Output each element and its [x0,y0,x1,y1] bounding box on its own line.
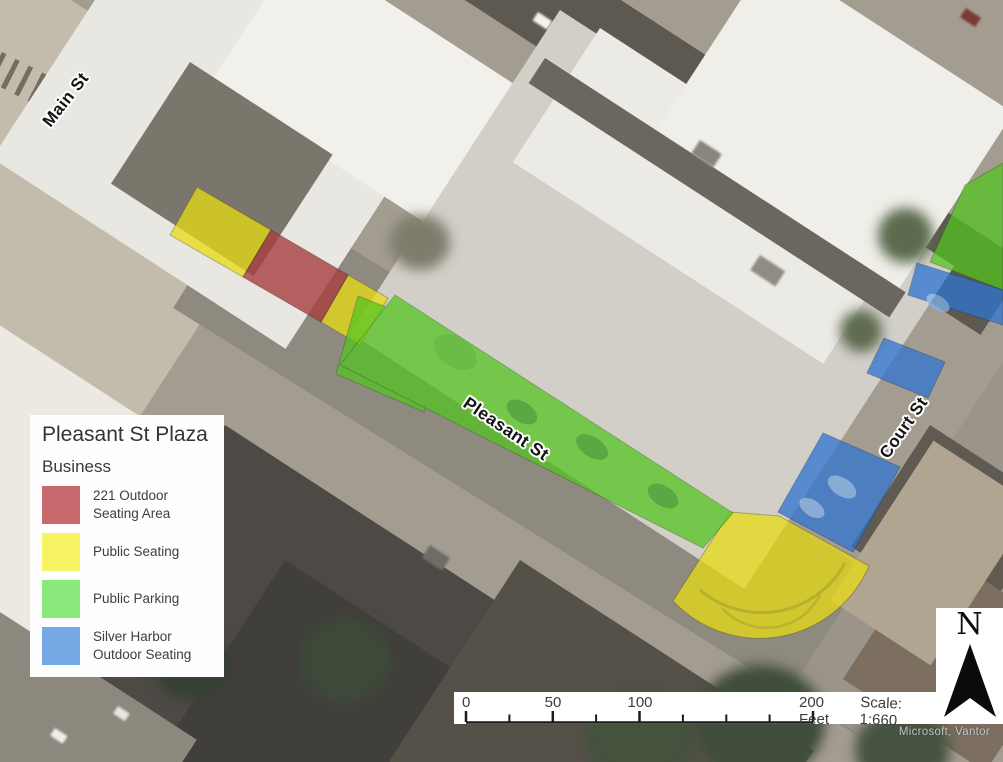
north-arrow-icon [942,642,998,720]
zone-public-parking-strip [340,295,733,548]
legend-item: Public Seating [42,533,212,571]
scale-tick-label-50: 50 [545,694,562,711]
legend-item: Silver Harbor Outdoor Seating [42,627,212,665]
map-canvas: Main St Pleasant St Court St Pleasant St… [0,0,1003,762]
legend-item-label: 221 Outdoor Seating Area [93,487,212,522]
legend-swatch-blue [42,627,80,665]
legend-swatch-green [42,580,80,618]
legend-subtitle: Business [42,457,212,477]
scale-tick-label-0: 0 [462,694,470,711]
zone-silver-harbor-seating [778,263,1003,552]
legend-item-label: Silver Harbor Outdoor Seating [93,628,212,663]
legend-swatch-yellow [42,533,80,571]
legend-item-label: Public Seating [93,543,179,561]
legend-item: Public Parking [42,580,212,618]
legend-item: 221 Outdoor Seating Area [42,486,212,524]
north-arrow-box: N [936,608,1003,724]
legend-panel: Pleasant St Plaza Business 221 Outdoor S… [30,415,224,677]
scale-bar: 0 50 100 200 Feet Scale: 1:660 [454,692,936,724]
north-label: N [956,610,982,640]
legend-item-label: Public Parking [93,590,179,608]
legend-title: Pleasant St Plaza [42,423,212,447]
legend-swatch-red [42,486,80,524]
map-attribution: Microsoft, Vantor [899,726,990,738]
scale-tick-label-100: 100 [627,694,652,711]
scale-tick-label-200: 200 Feet [799,694,853,728]
